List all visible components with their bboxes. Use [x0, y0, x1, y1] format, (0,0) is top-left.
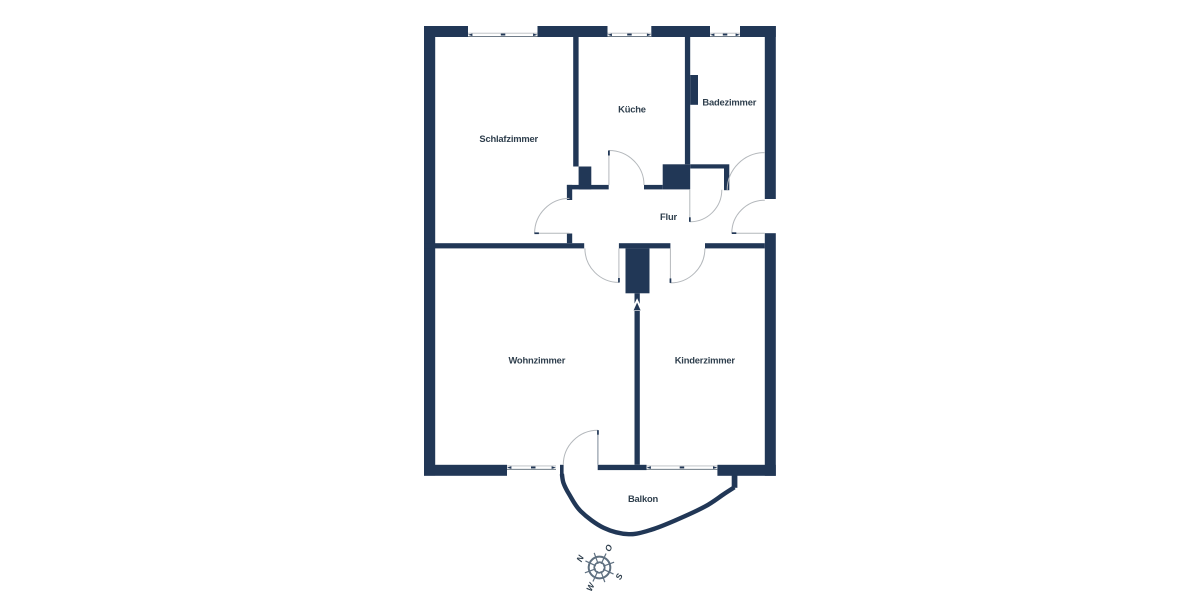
svg-text:Kinderzimmer: Kinderzimmer: [675, 354, 736, 365]
svg-text:Balkon: Balkon: [628, 493, 659, 504]
svg-text:Wohnzimmer: Wohnzimmer: [508, 354, 565, 365]
svg-text:Schlafzimmer: Schlafzimmer: [479, 133, 538, 144]
svg-text:Küche: Küche: [618, 103, 646, 114]
svg-text:Badezimmer: Badezimmer: [702, 97, 756, 108]
svg-text:Flur: Flur: [660, 211, 677, 222]
